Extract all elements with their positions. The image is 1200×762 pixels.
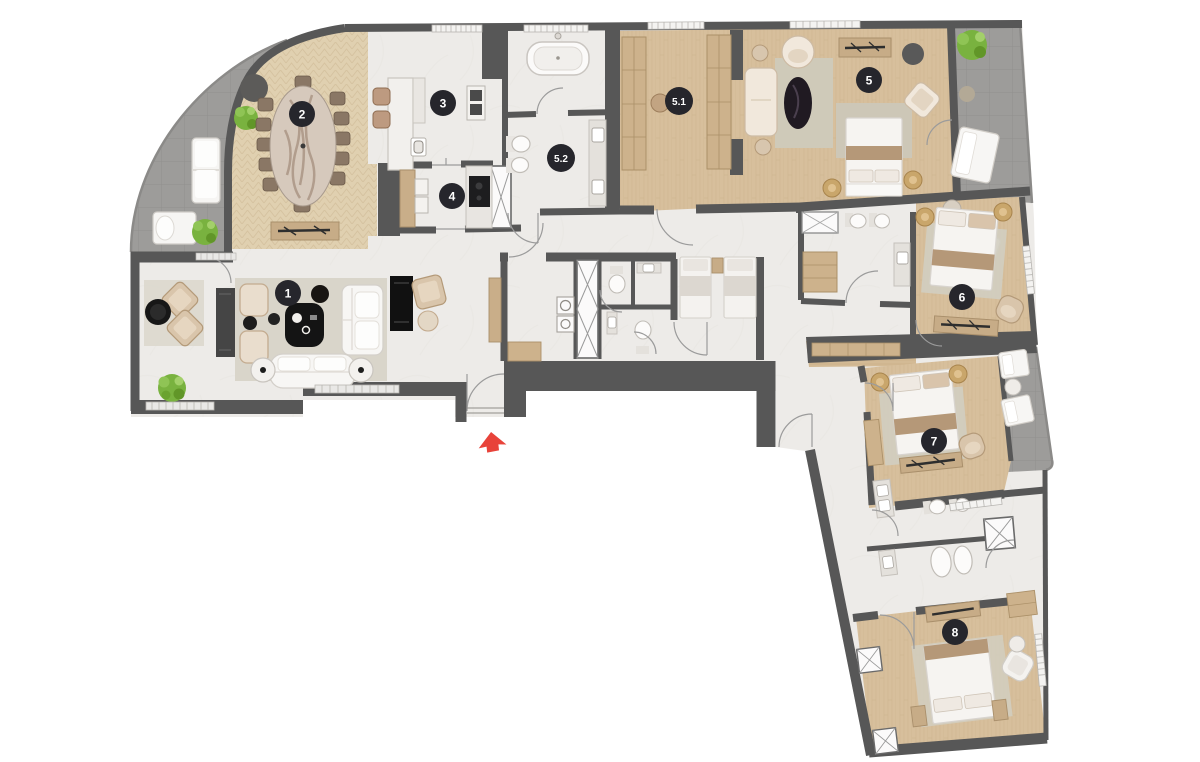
svg-text:7: 7 <box>931 435 938 449</box>
svg-text:6: 6 <box>959 291 966 305</box>
svg-text:5: 5 <box>866 74 873 88</box>
svg-text:2: 2 <box>299 108 306 122</box>
svg-text:8: 8 <box>952 626 959 640</box>
svg-text:4: 4 <box>449 190 456 204</box>
svg-text:1: 1 <box>285 287 292 301</box>
svg-text:3: 3 <box>440 97 447 111</box>
svg-text:5.2: 5.2 <box>554 154 568 165</box>
svg-text:5.1: 5.1 <box>672 97 686 108</box>
